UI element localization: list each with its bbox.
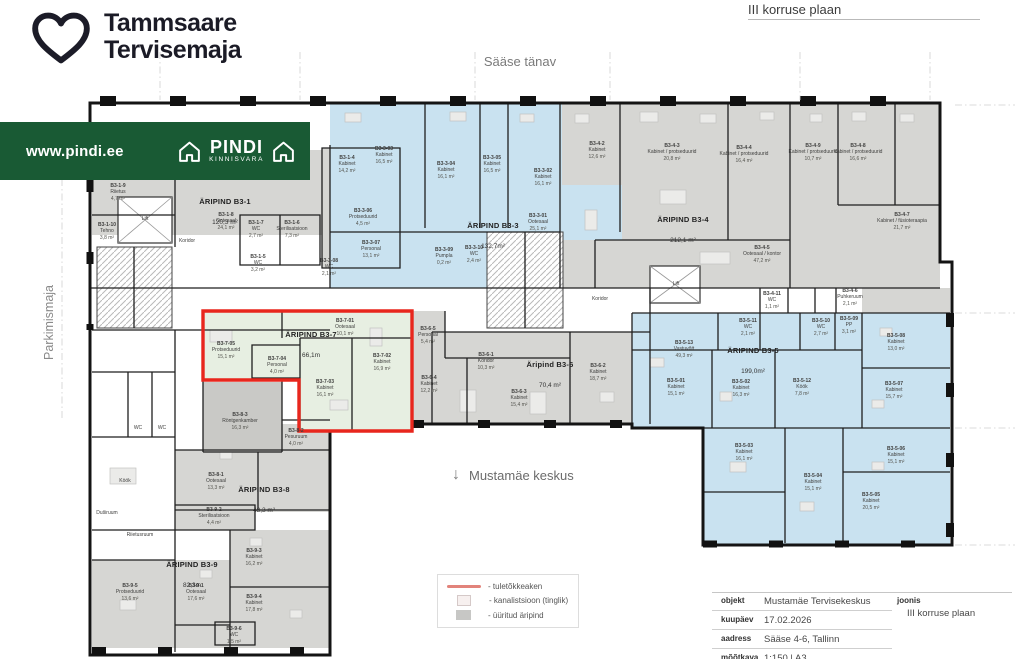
title-block-row-mõõtkava: mõõtkava1:150 | A3 [712, 649, 892, 659]
title-block: objektMustamäe Tervisekeskuskuupäev17.02… [712, 592, 892, 659]
floor-plan-page: Tammsaare Tervisemaja III korruse plaan … [0, 0, 1024, 659]
legend-item: - kanalistsioon (tinglik) [447, 595, 569, 606]
joonis-value: III korruse plaan [907, 608, 975, 619]
legend: - tuletõkkeaken- kanalistsioon (tinglik)… [437, 574, 579, 628]
pindi-banner: www.pindi.ee PINDI KINNISVARA [0, 122, 310, 180]
floorplan-drawing [0, 0, 1024, 659]
pindi-logo-title: PINDI [210, 138, 263, 156]
legend-swatch-rented [456, 610, 471, 620]
pindi-url[interactable]: www.pindi.ee [26, 143, 124, 160]
pindi-logo: PINDI KINNISVARA [177, 138, 296, 164]
house-icon [177, 139, 202, 164]
legend-swatch-fire [447, 585, 481, 588]
legend-item: - üüritud äripind [447, 610, 569, 620]
title-block-row-aadress: aadressSääse 4-6, Tallinn [712, 630, 892, 649]
region-fills [92, 103, 950, 648]
house-icon [271, 139, 296, 164]
joonis-label: joonis [897, 596, 975, 605]
legend-item: - tuletõkkeaken [447, 582, 569, 591]
pindi-logo-subtitle: KINNISVARA [209, 157, 264, 164]
title-block-joonis: joonis III korruse plaan [897, 596, 975, 619]
title-block-row-kuupäev: kuupäev17.02.2026 [712, 611, 892, 630]
title-block-row-objekt: objektMustamäe Tervisekeskus [712, 592, 892, 611]
legend-swatch-canal [457, 595, 471, 606]
